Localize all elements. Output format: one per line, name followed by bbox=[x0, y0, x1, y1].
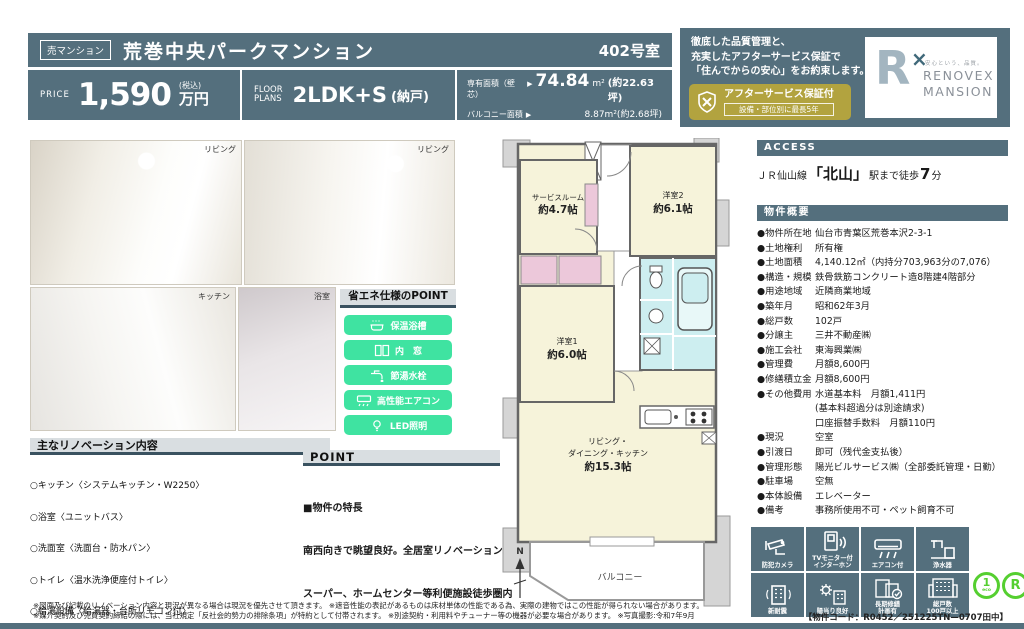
overview-label bbox=[757, 402, 815, 417]
overview-row: ●本体設備エレベーター bbox=[757, 490, 1011, 505]
overview-label: ●管理費 bbox=[757, 358, 815, 373]
overview-row: ●分譲主三井不動産㈱ bbox=[757, 329, 1011, 344]
after-service-badge: アフターサービス保証付 設備・部位別に最長5年 bbox=[689, 84, 851, 120]
access-rail-line: ＪＲ仙山線 bbox=[757, 167, 807, 182]
ldk-size: 約15.3帖 bbox=[585, 460, 632, 473]
floor-plan-column: FLOOR PLANS 2LDK+S (納戸) bbox=[240, 70, 455, 120]
price-unit-stack: (税込) 万円 bbox=[179, 82, 209, 107]
kitchen-photo: キッチン bbox=[30, 287, 236, 431]
access-minutes-unit: 分 bbox=[931, 167, 941, 182]
eco-buttons: 保温浴槽 内 窓 節湯水栓 高性能エアコン bbox=[340, 308, 456, 435]
security-camera-icon bbox=[763, 537, 793, 561]
building-title: 荒巻中央パークマンション bbox=[123, 37, 375, 64]
price-column: PRICE 1,590 (税込) 万円 bbox=[28, 70, 240, 120]
overview-row: ●その他費用水道基本料 月額1,411円 bbox=[757, 388, 1011, 403]
overview-row: (基本料超過分は別途請求) bbox=[757, 402, 1011, 417]
eco-item-label: LED照明 bbox=[390, 419, 427, 432]
overview-label: ●管理形態 bbox=[757, 461, 815, 476]
renovex-logo-card: R × 安心という、品質。 RENOVEX MANSION bbox=[865, 37, 997, 118]
water-purifier-icon bbox=[928, 537, 958, 561]
overview-value: 口座振替手数料 月額110円 bbox=[815, 417, 1011, 432]
feature-tile-label: TVモニター付 インターホン bbox=[812, 555, 853, 569]
disclaimer-line: ※媒介契約及び売買契約締結の際には、当社規定「反社会的勢力の排除条項」が特約とし… bbox=[33, 610, 1011, 621]
overview-value: 102戸 bbox=[815, 315, 1011, 330]
access-walk-text: 駅まで徒歩 bbox=[869, 167, 919, 182]
exclusive-area-row: 専有面積（壁芯） ▶ 74.84 m² (約22.63坪) bbox=[467, 71, 662, 104]
area-unit: m² bbox=[592, 79, 604, 89]
renovation-line: ○トイレ〈温水洗浄便座付トイレ〉 bbox=[30, 576, 350, 587]
overview-value: 事務所使用不可・ペット飼育不可 bbox=[815, 504, 1011, 519]
after-service-badge-text: アフターサービス保証付 設備・部位別に最長5年 bbox=[724, 89, 834, 116]
water-saving-faucet-icon bbox=[369, 369, 385, 382]
compass-label: N bbox=[516, 547, 524, 557]
overview-value: 東海興業㈱ bbox=[815, 344, 1011, 359]
overview-label: ●用途地域 bbox=[757, 285, 815, 300]
price-value: 1,590 bbox=[78, 77, 171, 113]
living-room-photo: リビング bbox=[30, 140, 242, 285]
area-label: 専有面積（壁芯） bbox=[467, 78, 524, 100]
feature-tile-label: エアコン付 bbox=[872, 562, 903, 569]
arrow-icon: ▶ bbox=[527, 80, 532, 88]
eco-item-label: 保温浴槽 bbox=[390, 319, 426, 332]
renovation-line: ○洗面室〈洗面台・防水パン〉 bbox=[30, 544, 350, 555]
access-line: ＪＲ仙山線 「北山」 駅まで徒歩 7 分 bbox=[757, 163, 1008, 184]
overview-row: 口座振替手数料 月額110円 bbox=[757, 417, 1011, 432]
eco-mark-badge: 1 eco bbox=[973, 572, 1000, 599]
balcony-label: バルコニー bbox=[598, 572, 643, 583]
long-term-repair-plan-icon bbox=[873, 576, 903, 600]
overview-row: ●土地権利所有権 bbox=[757, 242, 1011, 257]
overview-value: エレベーター bbox=[815, 490, 1011, 505]
eco-badge-sub: eco bbox=[982, 588, 991, 593]
renovation-section-header: 主なリノベーション内容 bbox=[30, 438, 330, 455]
promo-line: 徹底した品質管理と、 bbox=[691, 36, 870, 51]
sale-type-badge: 売マンション bbox=[40, 40, 111, 60]
overview-label: ●現況 bbox=[757, 431, 815, 446]
high-performance-aircon-icon bbox=[356, 394, 372, 407]
flyer-page: 売マンション 荒巻中央パークマンション 402号室 PRICE 1,590 (税… bbox=[0, 0, 1024, 629]
overview-label: ●構造・規模 bbox=[757, 271, 815, 286]
eco-panel-header: 省エネ仕様のPOINT bbox=[340, 289, 456, 308]
overview-value: 月額8,600円 bbox=[815, 373, 1011, 388]
eco-item-high-performance-aircon: 高性能エアコン bbox=[344, 390, 452, 410]
renovation-line: ○浴室〈ユニットバス〉 bbox=[30, 513, 350, 524]
badge-subtitle: 設備・部位別に最長5年 bbox=[724, 103, 834, 116]
area-tsubo: (約22.63坪) bbox=[608, 74, 662, 104]
eco-item-label: 高性能エアコン bbox=[377, 394, 440, 407]
floor-plan-note: (納戸) bbox=[391, 86, 429, 105]
photo-label: リビング bbox=[204, 144, 236, 155]
overview-row: ●管理形態陽光ビルサービス㈱（全部委託管理・日勤） bbox=[757, 461, 1011, 476]
overview-label: ●修繕積立金 bbox=[757, 373, 815, 388]
service-room-label: サービスルーム bbox=[532, 193, 584, 202]
overview-row: ●用途地域近隣商業地域 bbox=[757, 285, 1011, 300]
overview-section-header: 物件概要 bbox=[757, 205, 1008, 221]
logo-tagline: 安心という、品質。 bbox=[925, 59, 984, 67]
eco-item-thermal-bathtub: 保温浴槽 bbox=[344, 315, 452, 335]
bottom-accent-band bbox=[0, 623, 1024, 629]
bedroom1-size: 約6.0帖 bbox=[547, 348, 587, 361]
overview-value: 昭和62年3月 bbox=[815, 300, 1011, 315]
access-station: 「北山」 bbox=[808, 163, 868, 184]
floor-plan-value: 2LDK+S bbox=[293, 83, 387, 107]
led-bulb-icon bbox=[369, 419, 385, 432]
bathtub-icon bbox=[369, 319, 385, 332]
floor-plan: N サービスルーム 約4.7帖 洋室2 約6.1帖 洋室1 約6.0帖 リビング… bbox=[490, 138, 755, 612]
promo-line: 「住んでからの安心」をお約束します。 bbox=[691, 65, 870, 80]
price-label: PRICE bbox=[40, 90, 70, 100]
header-title-band: 売マンション 荒巻中央パークマンション 402号室 bbox=[28, 33, 672, 67]
overview-value: 月額8,600円 bbox=[815, 358, 1011, 373]
toilet bbox=[650, 272, 662, 288]
promo-line: 充実したアフターサービス保証で bbox=[691, 51, 870, 66]
header-price-band: PRICE 1,590 (税込) 万円 FLOOR PLANS 2LDK+S (… bbox=[28, 70, 672, 120]
overview-value: 空無 bbox=[815, 475, 1011, 490]
eco-spec-panel: 省エネ仕様のPOINT 保温浴槽 内 窓 節湯水栓 bbox=[340, 289, 456, 431]
overview-value: 仙台市青葉区荒巻本沢2-3-1 bbox=[815, 227, 1011, 242]
overview-label: ●築年月 bbox=[757, 300, 815, 315]
eco-item-water-saving-faucet: 節湯水栓 bbox=[344, 365, 452, 385]
feature-tile-water-purifier: 浄水器 bbox=[916, 527, 969, 571]
feature-tile-security-camera: 防犯カメラ bbox=[751, 527, 804, 571]
bedroom2 bbox=[630, 146, 716, 256]
tools-shield-icon bbox=[695, 90, 719, 114]
eco-item-led-lighting: LED照明 bbox=[344, 415, 452, 435]
overview-label bbox=[757, 417, 815, 432]
badge-title: アフターサービス保証付 bbox=[724, 89, 834, 101]
area-value: 74.84 bbox=[536, 71, 590, 91]
feature-tile-label: 浄水器 bbox=[933, 562, 952, 569]
area-column: 専有面積（壁芯） ▶ 74.84 m² (約22.63坪) バルコニー面積 ▶ … bbox=[455, 70, 672, 120]
aircon-equipped-icon bbox=[873, 537, 903, 561]
balcony-label: バルコニー面積 bbox=[467, 109, 523, 120]
promo-panel: 徹底した品質管理と、 充実したアフターサービス保証で 「住んでからの安心」をお約… bbox=[680, 28, 1010, 127]
overview-row: ●駐車場空無 bbox=[757, 475, 1011, 490]
overview-row: ●引渡日即可（残代金支払後） bbox=[757, 446, 1011, 461]
overview-row: ●備考事務所使用不可・ペット飼育不可 bbox=[757, 504, 1011, 519]
bathroom-photo: 浴室 bbox=[238, 287, 336, 431]
overview-label: ●引渡日 bbox=[757, 446, 815, 461]
overview-row: ●土地面積4,140.12㎡（内持分703,963分の7,076） bbox=[757, 256, 1011, 271]
balcony bbox=[530, 542, 704, 600]
ldk-label: ダイニング・キッチン bbox=[568, 448, 648, 458]
overview-value: 所有権 bbox=[815, 242, 1011, 257]
eco-item-label: 内 窓 bbox=[395, 344, 422, 357]
overview-value: 三井不動産㈱ bbox=[815, 329, 1011, 344]
price-unit: 万円 bbox=[179, 91, 209, 108]
logo-brand-name: MANSION bbox=[923, 84, 993, 99]
overview-value: 4,140.12㎡（内持分703,963分の7,076） bbox=[815, 256, 1011, 271]
access-section-header: ACCESS bbox=[757, 140, 1008, 156]
overview-row: ●物件所在地仙台市青葉区荒巻本沢2-3-1 bbox=[757, 227, 1011, 242]
eco-item-label: 節湯水栓 bbox=[390, 369, 426, 382]
bedroom1-label: 洋室1 bbox=[556, 336, 577, 346]
overview-list: ●物件所在地仙台市青葉区荒巻本沢2-3-1 ●土地権利所有権 ●土地面積4,14… bbox=[757, 227, 1011, 519]
bedroom2-size: 約6.1帖 bbox=[653, 202, 693, 215]
overview-label: ●備考 bbox=[757, 504, 815, 519]
balcony-value: 8.87m²(約2.68坪) bbox=[585, 107, 662, 120]
overview-row: ●築年月昭和62年3月 bbox=[757, 300, 1011, 315]
balcony-area-row: バルコニー面積 ▶ 8.87m²(約2.68坪) bbox=[467, 107, 662, 120]
photo-label: キッチン bbox=[198, 291, 230, 302]
eco-item-inner-window: 内 窓 bbox=[344, 340, 452, 360]
service-room-size: 約4.7帖 bbox=[538, 203, 578, 216]
ldk-label: リビング・ bbox=[588, 436, 628, 446]
overview-value: 陽光ビルサービス㈱（全部委託管理・日勤） bbox=[815, 461, 1011, 476]
access-minutes: 7 bbox=[920, 165, 930, 183]
overview-row: ●現況空室 bbox=[757, 431, 1011, 446]
overview-label: ●土地面積 bbox=[757, 256, 815, 271]
floor-plans-label: FLOOR PLANS bbox=[254, 86, 283, 105]
bedroom2-label: 洋室2 bbox=[662, 190, 683, 200]
feature-tile-label: 防犯カメラ bbox=[762, 562, 793, 569]
tv-monitor-intercom-icon bbox=[818, 530, 848, 554]
r-badge-letter: R bbox=[1010, 578, 1020, 593]
logo-brand-name: RENOVEX bbox=[923, 68, 994, 83]
point-section-header: POINT bbox=[303, 450, 500, 466]
overview-label: ●物件所在地 bbox=[757, 227, 815, 242]
overview-value: 即可（残代金支払後） bbox=[815, 446, 1011, 461]
arrow-icon: ▶ bbox=[526, 111, 531, 119]
promo-text: 徹底した品質管理と、 充実したアフターサービス保証で 「住んでからの安心」をお約… bbox=[691, 36, 870, 80]
recycle-mark-badge: R bbox=[1002, 572, 1024, 599]
overview-row: ●総戸数102戸 bbox=[757, 315, 1011, 330]
overview-label: ●土地権利 bbox=[757, 242, 815, 257]
total-units-icon bbox=[928, 576, 958, 600]
overview-label: ●分譲主 bbox=[757, 329, 815, 344]
photo-label: 浴室 bbox=[314, 291, 330, 302]
overview-label: ●施工会社 bbox=[757, 344, 815, 359]
eco-mark-badges: 1 eco R bbox=[973, 572, 1024, 599]
overview-row: ●構造・規模鉄骨鉄筋コンクリート造8階建4階部分 bbox=[757, 271, 1011, 286]
overview-row: ●管理費月額8,600円 bbox=[757, 358, 1011, 373]
photo-label: リビング bbox=[417, 144, 449, 155]
overview-value: 近隣商業地域 bbox=[815, 285, 1011, 300]
overview-row: ●施工会社東海興業㈱ bbox=[757, 344, 1011, 359]
living-room-photo: リビング bbox=[244, 140, 455, 285]
overview-value: 水道基本料 月額1,411円 bbox=[815, 388, 1011, 403]
feature-tile-tv-intercom: TVモニター付 インターホン bbox=[806, 527, 859, 571]
wash-basin bbox=[649, 309, 663, 323]
inner-window-icon bbox=[374, 344, 390, 357]
overview-label: ●本体設備 bbox=[757, 490, 815, 505]
overview-label: ●総戸数 bbox=[757, 315, 815, 330]
feature-tile-aircon: エアコン付 bbox=[861, 527, 914, 571]
overview-label: ●駐車場 bbox=[757, 475, 815, 490]
overview-row: ●修繕積立金月額8,600円 bbox=[757, 373, 1011, 388]
renovation-line: ○キッチン〈システムキッチン・W2250〉 bbox=[30, 481, 350, 492]
eco-badge-number: 1 bbox=[983, 578, 991, 588]
overview-label: ●その他費用 bbox=[757, 388, 815, 403]
overview-value: (基本料超過分は別途請求) bbox=[815, 402, 1011, 417]
overview-value: 空室 bbox=[815, 431, 1011, 446]
room-number: 402号室 bbox=[599, 40, 660, 61]
logo-r-letter: R bbox=[875, 45, 910, 91]
overview-value: 鉄骨鉄筋コンクリート造8階建4階部分 bbox=[815, 271, 1011, 286]
